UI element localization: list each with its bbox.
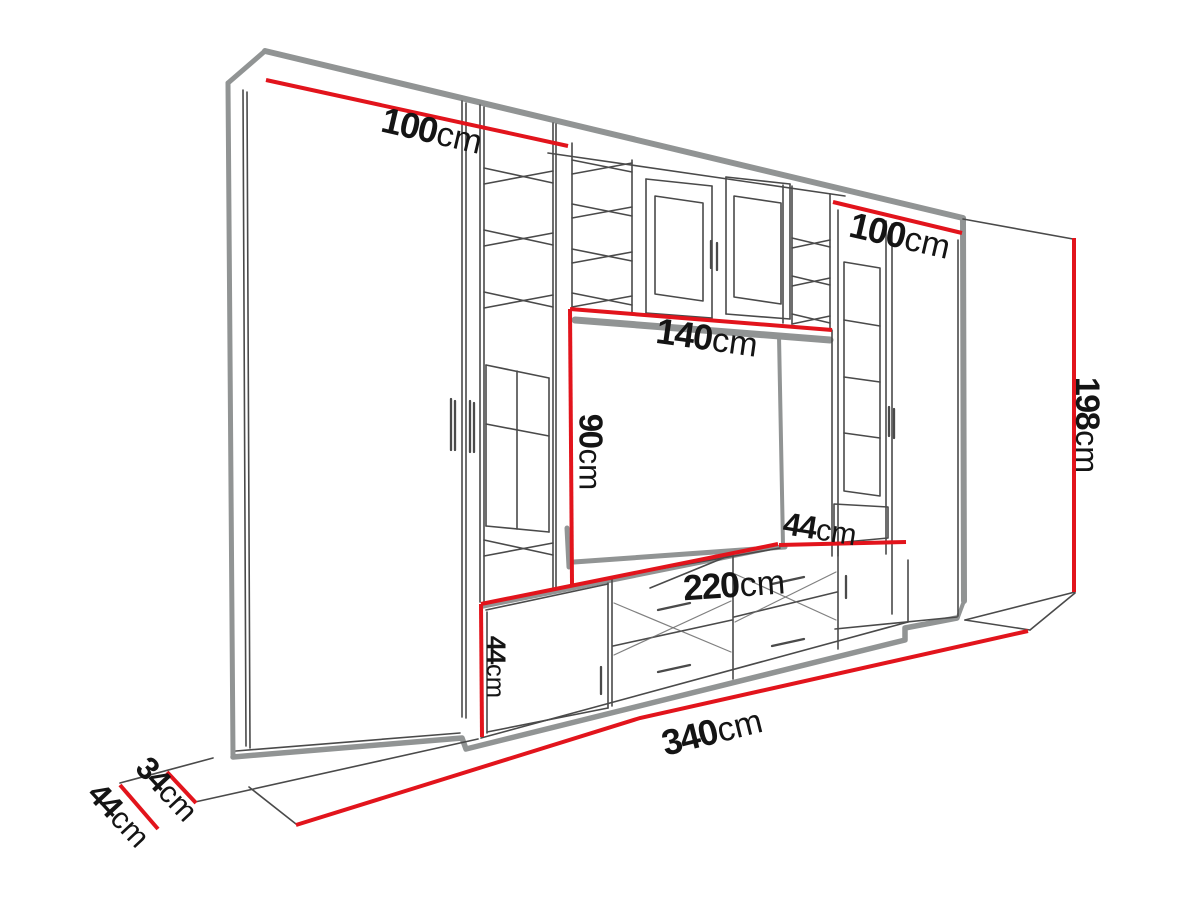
diagram-canvas: 100cm 100cm 198cm 140cm 90cm 44cm 220cm … xyxy=(0,0,1200,899)
dim-label-base-width: 220cm xyxy=(682,563,786,606)
drawer-handle-icon xyxy=(658,665,690,672)
dim-value: 140 xyxy=(654,310,715,358)
cabinet-handle-icon xyxy=(711,241,717,270)
drawer-handle-icon xyxy=(772,639,804,646)
dim-label-base-height: 44cm xyxy=(481,636,509,698)
left-wardrobe xyxy=(236,90,474,751)
dim-value: 44 xyxy=(781,505,819,546)
dim-unit: cm xyxy=(710,321,760,365)
dim-unit: cm xyxy=(573,448,608,490)
dim-label-total-height: 198cm xyxy=(1070,377,1104,473)
dim-value: 220 xyxy=(682,564,740,609)
left-shelf-column xyxy=(480,105,556,602)
right-wardrobe xyxy=(835,224,958,629)
dim-value: 44 xyxy=(481,636,511,663)
dim-unit: cm xyxy=(738,563,786,604)
dim-label-niche-height: 90cm xyxy=(574,414,607,491)
side-panel xyxy=(963,219,1075,630)
right-display-column xyxy=(834,210,894,556)
dim-unit: cm xyxy=(481,664,509,698)
unit-outline xyxy=(228,51,964,757)
dim-value: 198 xyxy=(1068,377,1106,429)
dim-value: 90 xyxy=(573,414,610,448)
dim-unit: cm xyxy=(1069,430,1105,473)
upper-cabinets xyxy=(548,143,845,329)
dim-unit: cm xyxy=(814,512,859,552)
